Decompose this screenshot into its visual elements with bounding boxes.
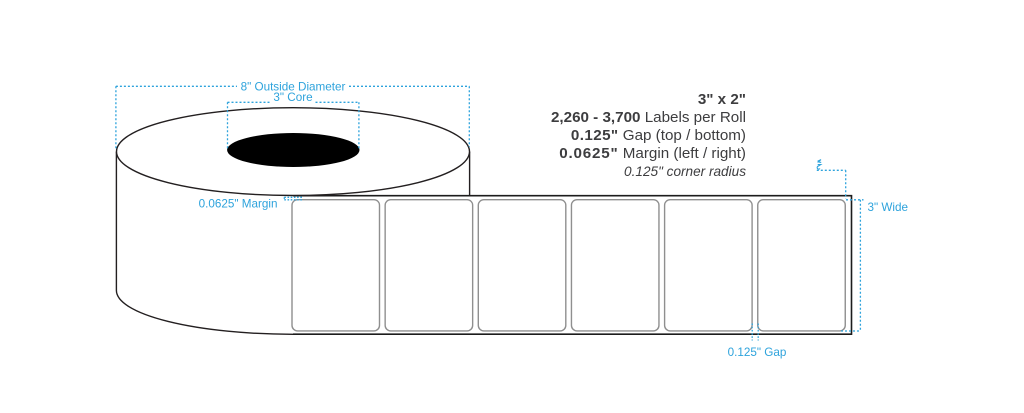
svg-text:0.0625" Margin (left / right): 0.0625" Margin (left / right) — [559, 145, 746, 162]
svg-text:3" x 2": 3" x 2" — [698, 91, 746, 108]
svg-text:3" Core: 3" Core — [273, 91, 312, 104]
svg-text:0.125" Gap (top / bottom): 0.125" Gap (top / bottom) — [571, 127, 746, 144]
svg-text:3" Wide: 3" Wide — [868, 201, 909, 214]
svg-text:0.125" Gap: 0.125" Gap — [728, 346, 787, 359]
svg-text:0.0625" Margin: 0.0625" Margin — [199, 198, 278, 211]
svg-text:0.125" corner radius: 0.125" corner radius — [624, 164, 746, 179]
svg-text:2,260 - 3,700 Labels per Roll: 2,260 - 3,700 Labels per Roll — [551, 109, 746, 126]
